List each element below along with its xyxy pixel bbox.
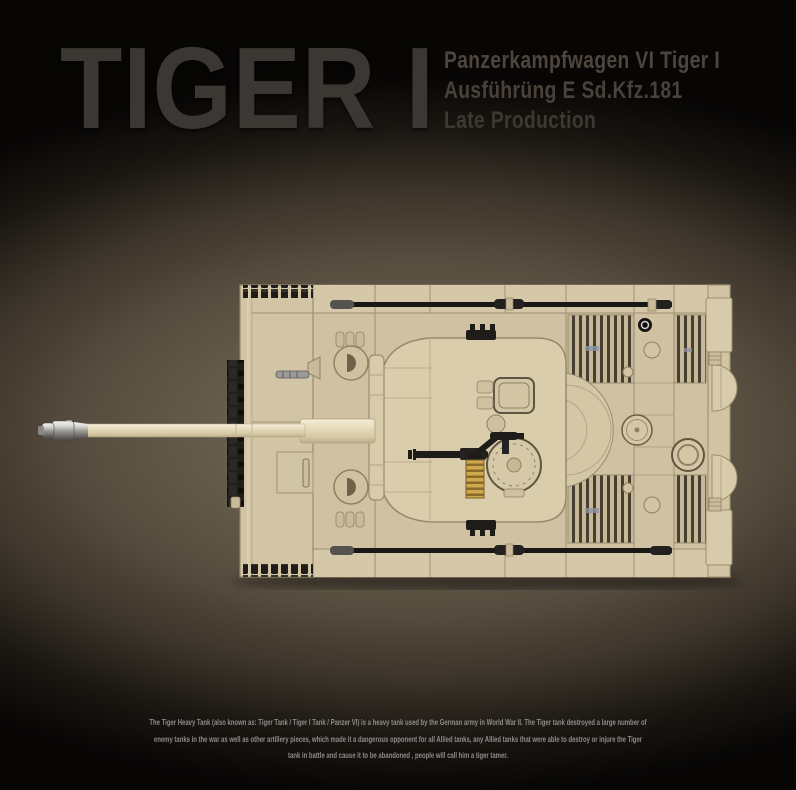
muzzle-brake bbox=[38, 420, 88, 441]
subtitle-line-2: Ausführüng E Sd.Kfz.181 bbox=[444, 76, 720, 106]
front-latch bbox=[303, 459, 309, 487]
rear-hatch-cap bbox=[672, 439, 704, 471]
spring-brass bbox=[466, 454, 484, 498]
subtitle-line-1: Panzerkampfwagen VI Tiger I bbox=[444, 46, 720, 76]
description: The Tiger Heavy Tank (also known as: Tig… bbox=[0, 714, 796, 764]
description-line-1: The Tiger Heavy Tank (also known as: Tig… bbox=[119, 714, 676, 731]
exhaust-lower bbox=[712, 455, 737, 501]
description-line-3: tank in battle and cause it to be abando… bbox=[119, 747, 676, 764]
tank-top-view-illustration bbox=[0, 250, 796, 590]
exhaust-upper bbox=[712, 365, 737, 411]
gun-barrel bbox=[86, 424, 305, 437]
page-title: TIGER I bbox=[60, 30, 435, 146]
fuel-filler-cap bbox=[622, 415, 652, 445]
description-line-2: enemy tanks in the war as well as other … bbox=[119, 731, 676, 748]
poster: TIGER I Panzerkampfwagen VI Tiger I Ausf… bbox=[0, 0, 796, 790]
subtitle-line-3: Late Production bbox=[444, 106, 720, 136]
tank-svg bbox=[0, 250, 796, 590]
subtitle: Panzerkampfwagen VI Tiger I Ausführüng E… bbox=[444, 46, 720, 136]
rear-plate bbox=[706, 285, 737, 577]
main-gun bbox=[38, 419, 375, 443]
